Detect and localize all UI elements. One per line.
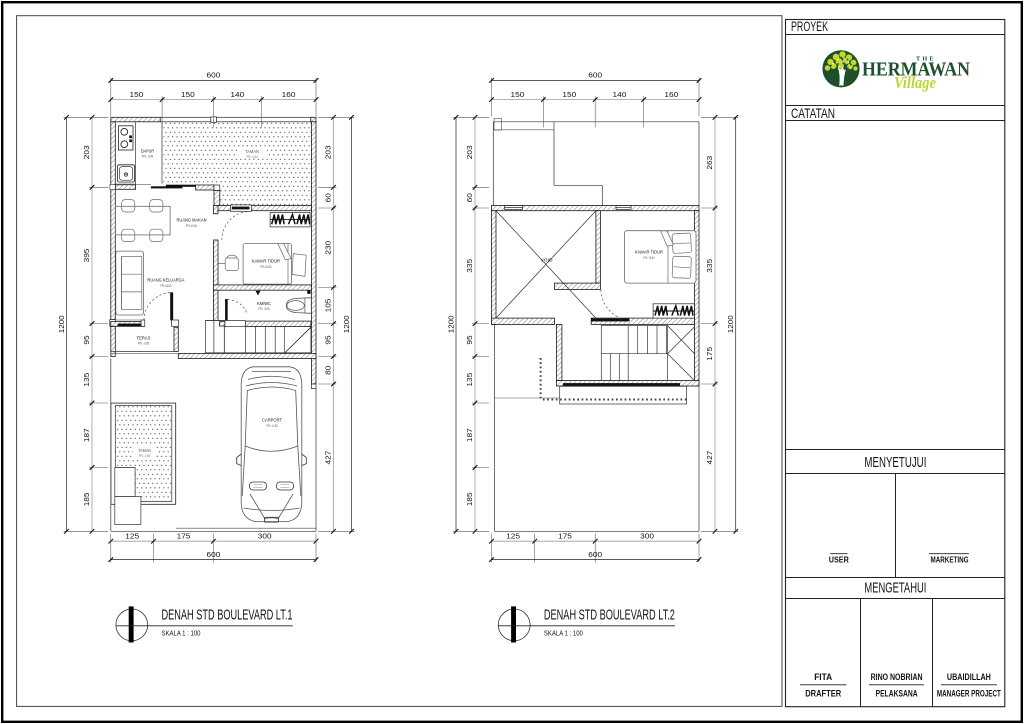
svg-text:RUANG KELUARGA: RUANG KELUARGA [147, 278, 185, 284]
svg-text:263: 263 [705, 156, 714, 170]
svg-text:60: 60 [465, 193, 474, 202]
svg-text:150: 150 [181, 90, 195, 99]
svg-text:105: 105 [323, 299, 332, 313]
svg-text:1200: 1200 [446, 315, 455, 333]
svg-text:150: 150 [130, 90, 144, 99]
svg-text:RUANG MAKAN: RUANG MAKAN [177, 218, 207, 224]
svg-text:CARPORT: CARPORT [262, 418, 282, 424]
svg-text:Village: Village [894, 73, 936, 92]
svg-text:MENYETUJUI: MENYETUJUI [864, 455, 926, 471]
svg-text:FFL -0.30: FFL -0.30 [267, 424, 278, 428]
svg-text:203: 203 [323, 145, 332, 159]
svg-text:FFL +3.40: FFL +3.40 [644, 256, 655, 260]
svg-text:1200: 1200 [57, 315, 66, 333]
svg-text:PELAKSANA: PELAKSANA [876, 689, 918, 699]
svg-text:175: 175 [558, 531, 572, 540]
svg-text:FITA: FITA [814, 672, 832, 682]
svg-text:UBAIDILLAH: UBAIDILLAH [947, 672, 991, 682]
svg-text:1200: 1200 [342, 315, 351, 333]
svg-text:125: 125 [506, 531, 520, 540]
svg-text:60: 60 [323, 193, 332, 202]
svg-text:300: 300 [258, 531, 272, 540]
svg-text:FFL ±0.00: FFL ±0.00 [160, 284, 171, 288]
svg-text:600: 600 [207, 71, 221, 80]
svg-text:175: 175 [177, 531, 191, 540]
svg-text:185: 185 [465, 493, 474, 507]
svg-text:TAMAN: TAMAN [138, 448, 151, 453]
svg-text:MENGETAHUI: MENGETAHUI [864, 581, 926, 597]
svg-text:SKALA 1 : 100: SKALA 1 : 100 [544, 628, 583, 637]
svg-text:600: 600 [588, 550, 602, 559]
svg-text:125: 125 [125, 531, 139, 540]
svg-text:203: 203 [82, 145, 91, 159]
svg-text:DRAFTER: DRAFTER [805, 689, 841, 699]
svg-text:1200: 1200 [726, 315, 735, 333]
svg-text:427: 427 [705, 451, 714, 465]
svg-text:230: 230 [323, 241, 332, 255]
svg-text:USER: USER [829, 555, 849, 565]
svg-text:FFL -0.05: FFL -0.05 [259, 307, 270, 311]
svg-text:CATATAN: CATATAN [791, 105, 835, 121]
svg-text:185: 185 [82, 493, 91, 507]
svg-text:MANAGER PROJECT: MANAGER PROJECT [937, 689, 1001, 699]
svg-text:187: 187 [465, 428, 474, 442]
svg-text:FFL -0.05: FFL -0.05 [142, 155, 153, 159]
svg-text:95: 95 [465, 335, 474, 344]
svg-text:95: 95 [323, 335, 332, 344]
svg-text:160: 160 [664, 90, 678, 99]
svg-text:600: 600 [588, 71, 602, 80]
svg-text:FFL ±0.00: FFL ±0.00 [260, 265, 271, 269]
svg-text:175: 175 [705, 347, 714, 361]
svg-text:MARKETING: MARKETING [931, 555, 969, 565]
svg-text:150: 150 [562, 90, 576, 99]
svg-text:KM/WC: KM/WC [257, 301, 271, 306]
svg-text:95: 95 [82, 335, 91, 344]
svg-text:80: 80 [323, 366, 332, 375]
svg-text:KAMAR TIDUR: KAMAR TIDUR [252, 259, 280, 265]
svg-text:KAMAR TIDUR: KAMAR TIDUR [635, 250, 663, 256]
svg-text:150: 150 [511, 90, 525, 99]
svg-text:600: 600 [207, 550, 221, 559]
svg-text:335: 335 [465, 259, 474, 273]
svg-text:395: 395 [82, 249, 91, 263]
svg-text:300: 300 [640, 531, 654, 540]
svg-text:DENAH STD BOULEVARD LT.1: DENAH STD BOULEVARD LT.1 [162, 607, 293, 624]
svg-text:FFL -0.05: FFL -0.05 [139, 454, 150, 458]
svg-text:140: 140 [613, 90, 627, 99]
svg-text:203: 203 [465, 145, 474, 159]
svg-text:187: 187 [82, 428, 91, 442]
svg-text:160: 160 [282, 90, 296, 99]
svg-text:DENAH STD BOULEVARD LT.2: DENAH STD BOULEVARD LT.2 [544, 607, 675, 624]
svg-text:427: 427 [323, 451, 332, 465]
svg-text:135: 135 [465, 373, 474, 387]
svg-text:FFL -0.05: FFL -0.05 [138, 342, 149, 346]
svg-text:RINO NOBRIAN: RINO NOBRIAN [871, 672, 923, 682]
svg-text:FFL -0.30: FFL -0.30 [247, 155, 258, 159]
svg-text:SKALA 1 : 100: SKALA 1 : 100 [162, 628, 201, 637]
svg-text:FFL ±0.00: FFL ±0.00 [186, 224, 197, 228]
svg-text:140: 140 [230, 90, 244, 99]
svg-text:335: 335 [705, 259, 714, 273]
svg-text:135: 135 [82, 373, 91, 387]
svg-text:VOID: VOID [541, 258, 554, 264]
svg-text:PROYEK: PROYEK [791, 18, 828, 34]
